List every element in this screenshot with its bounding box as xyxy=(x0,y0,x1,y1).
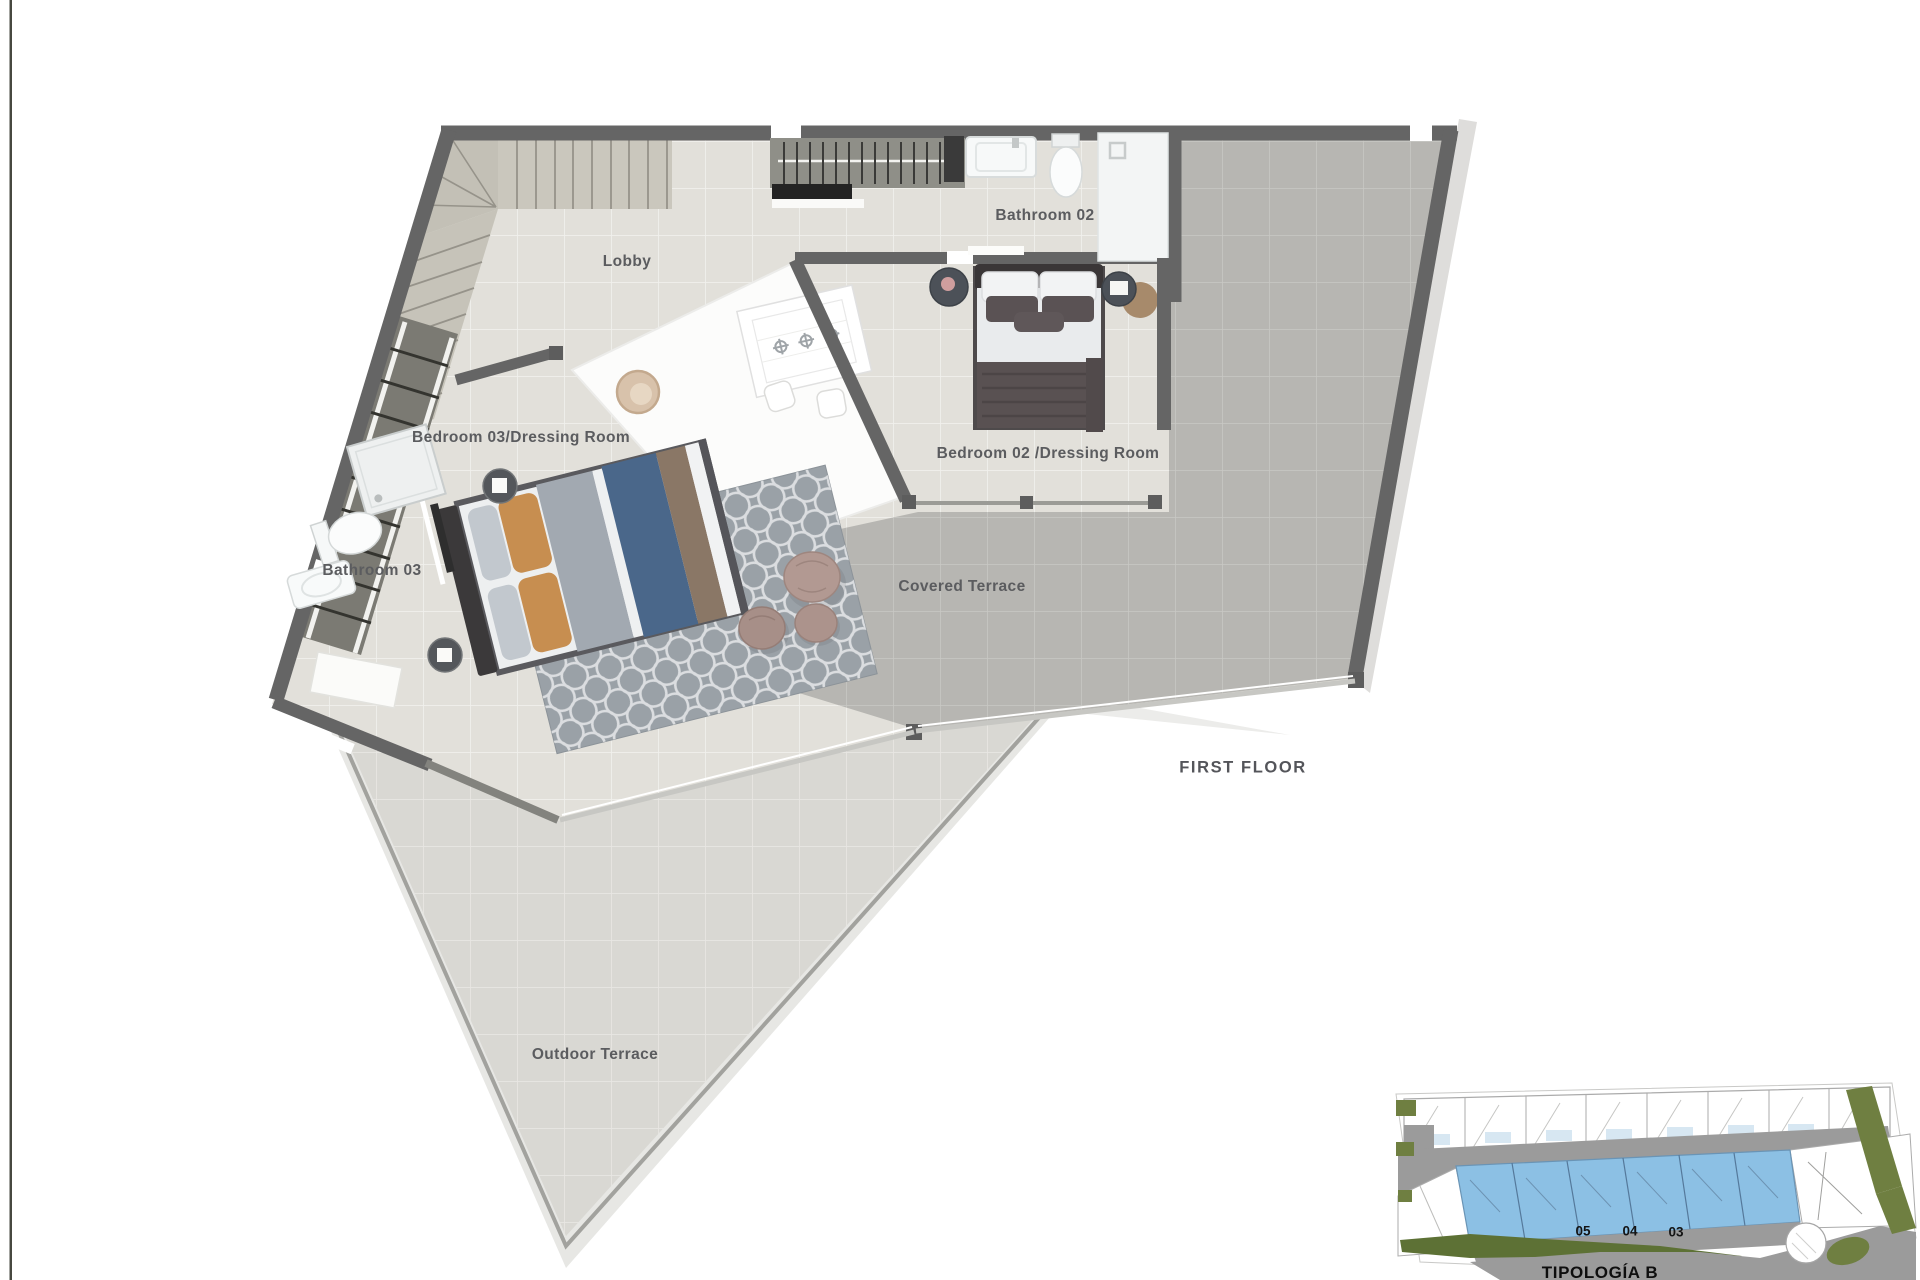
lobby-armchair xyxy=(617,371,659,413)
room-label-bedroom-02: Bedroom 02 /Dressing Room xyxy=(937,445,1160,463)
toilet xyxy=(1050,147,1082,197)
faucet xyxy=(1012,138,1019,148)
floor-plan-drawing xyxy=(0,0,1920,1280)
inset-typology-label: TIPOLOGÍA B xyxy=(1542,1263,1658,1280)
inset-unit-number-03: 03 xyxy=(1668,1225,1683,1240)
room-label-bathroom-03: Bathroom 03 xyxy=(322,562,421,580)
foot-blanket xyxy=(977,362,1101,428)
inset-unit-number-05: 05 xyxy=(1575,1224,1590,1239)
room-label-bedroom-03: Bedroom 03/Dressing Room xyxy=(412,429,630,447)
room-label-lobby: Lobby xyxy=(603,253,652,271)
room-label-covered-terrace: Covered Terrace xyxy=(898,578,1025,596)
shower-tray xyxy=(1098,133,1168,261)
inset-unit-number-04: 04 xyxy=(1622,1224,1637,1239)
wardrobe-door xyxy=(944,136,964,182)
site-plan-inset xyxy=(1396,1083,1916,1280)
sheet-border-line xyxy=(10,0,13,1280)
room-label-bathroom-02: Bathroom 02 xyxy=(995,207,1094,225)
toilet-tank xyxy=(1052,134,1079,147)
floor-plan-sheet: Lobby Bathroom 02 Bedroom 03/Dressing Ro… xyxy=(0,0,1920,1280)
room-label-outdoor-terrace: Outdoor Terrace xyxy=(532,1046,658,1064)
floor-title: FIRST FLOOR xyxy=(1179,759,1307,778)
